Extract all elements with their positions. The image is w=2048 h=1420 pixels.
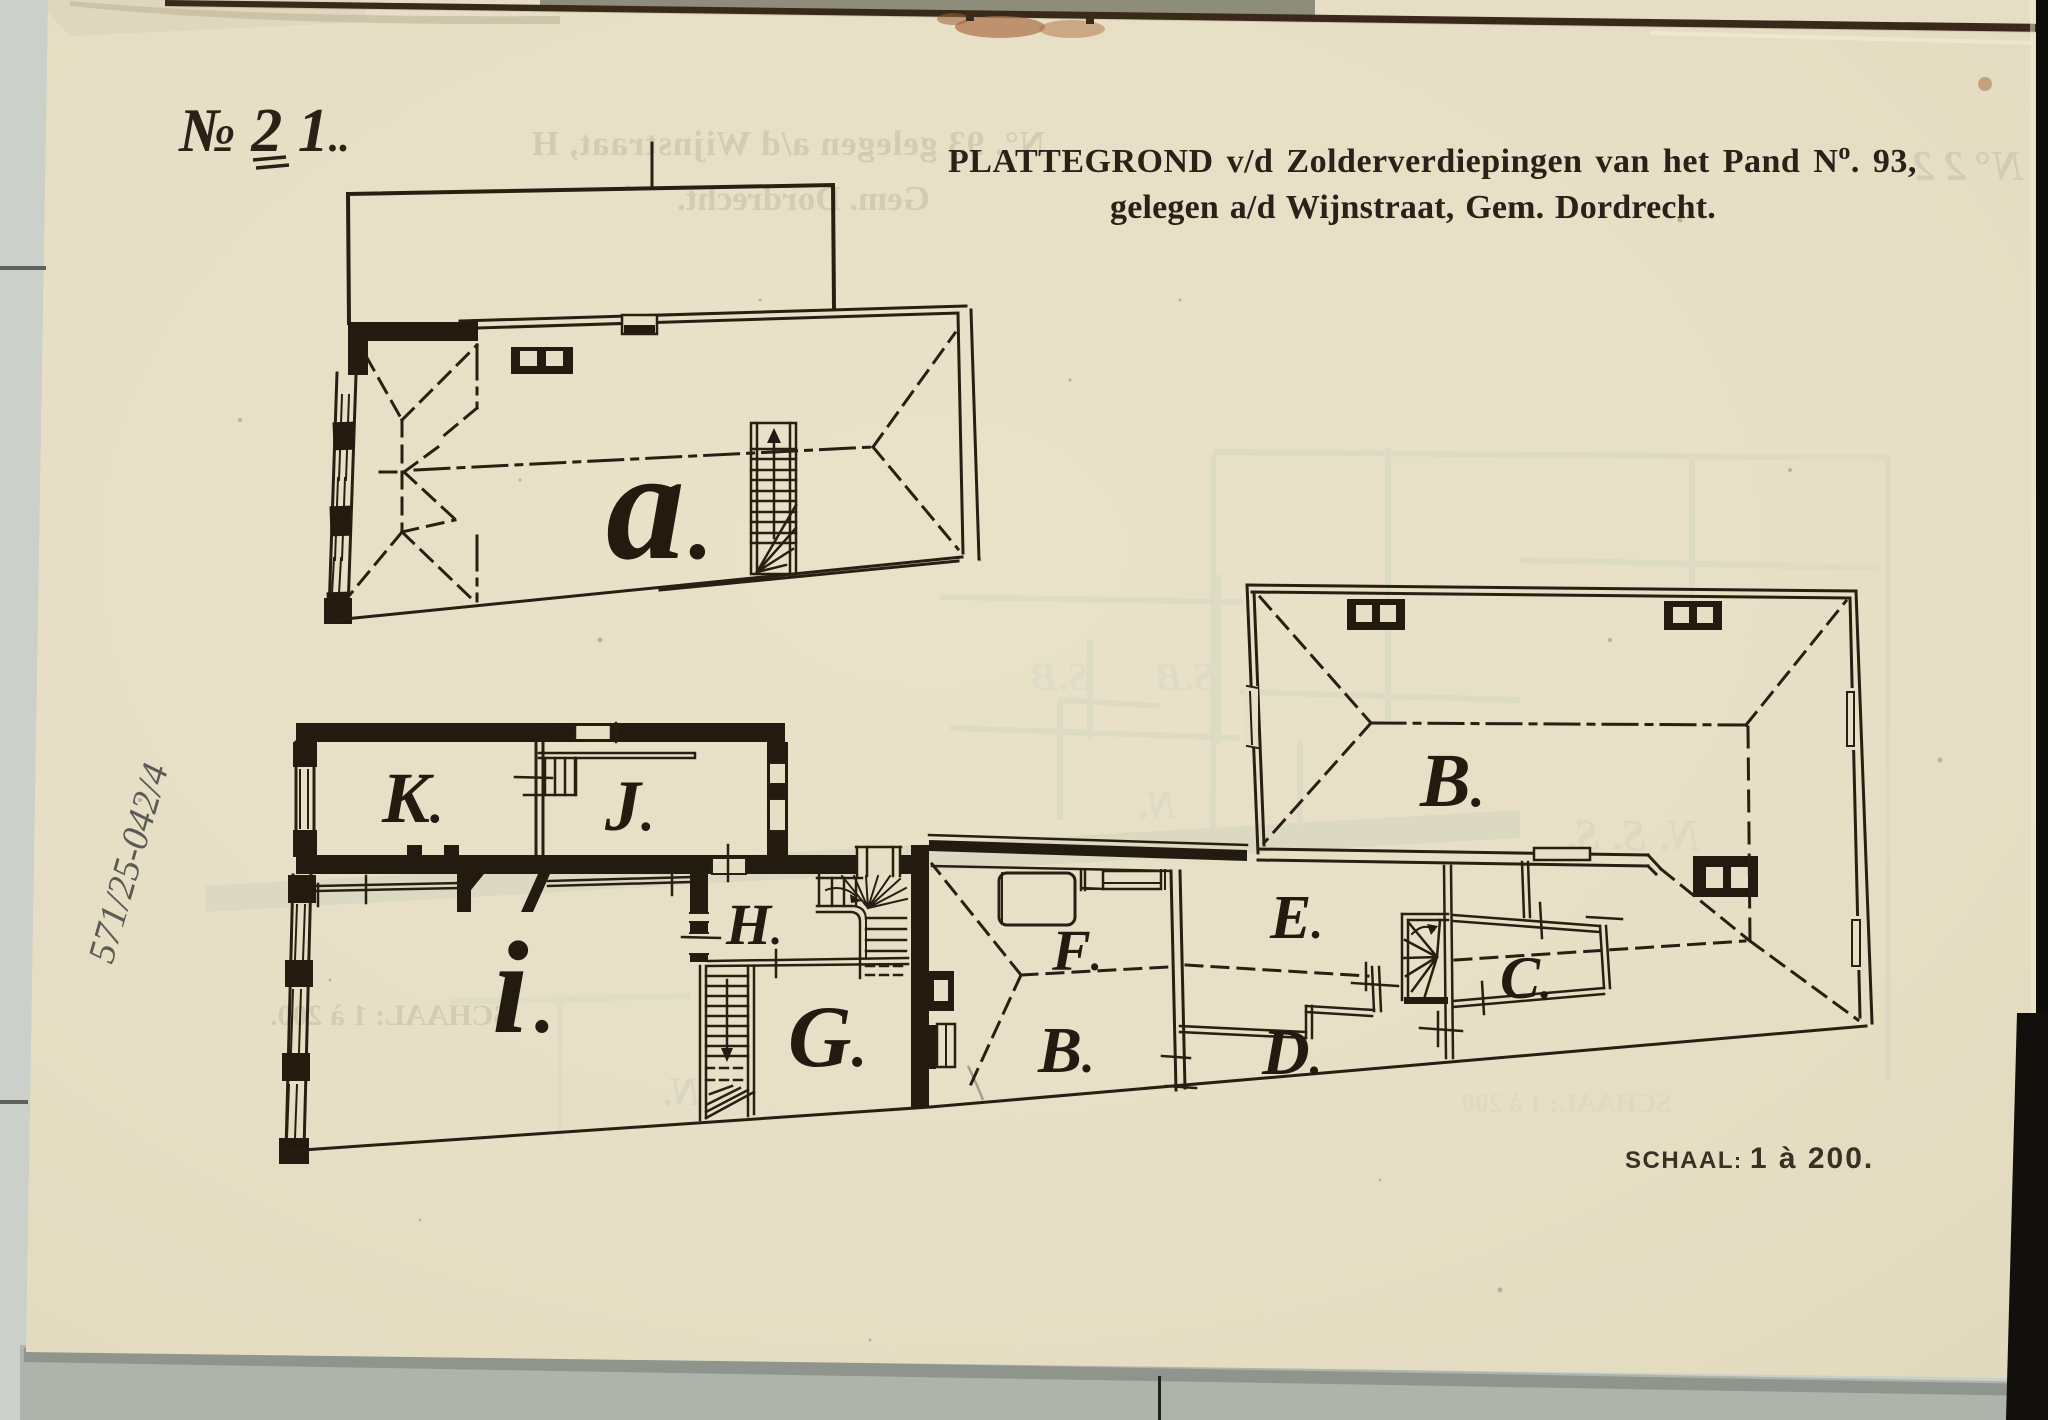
svg-text:N.: N. [1137,782,1177,827]
svg-text:PLATTEGROND v/d Zolderverdiepi: PLATTEGROND v/d Zolderverdiepingen van h… [948,139,1917,180]
svg-text:S.B: S.B [1156,654,1215,699]
svg-text:gelegen a/d Wijnstraat, Gem. D: gelegen a/d Wijnstraat, Gem. Dordrecht. [1110,189,1716,226]
svg-text:SCHAAL: 1 à 200: SCHAAL: 1 à 200 [1462,1088,1671,1118]
svg-text:SCHAAL: 1 à 200.: SCHAAL: 1 à 200. [1625,1142,1874,1175]
svg-text:S.B: S.B [1031,654,1090,699]
svg-text:№ 2 1..: № 2 1.. [178,97,350,165]
svg-text:N.: N. [661,1069,701,1114]
svg-text:N° 2 2: N° 2 2 [1913,144,2024,190]
